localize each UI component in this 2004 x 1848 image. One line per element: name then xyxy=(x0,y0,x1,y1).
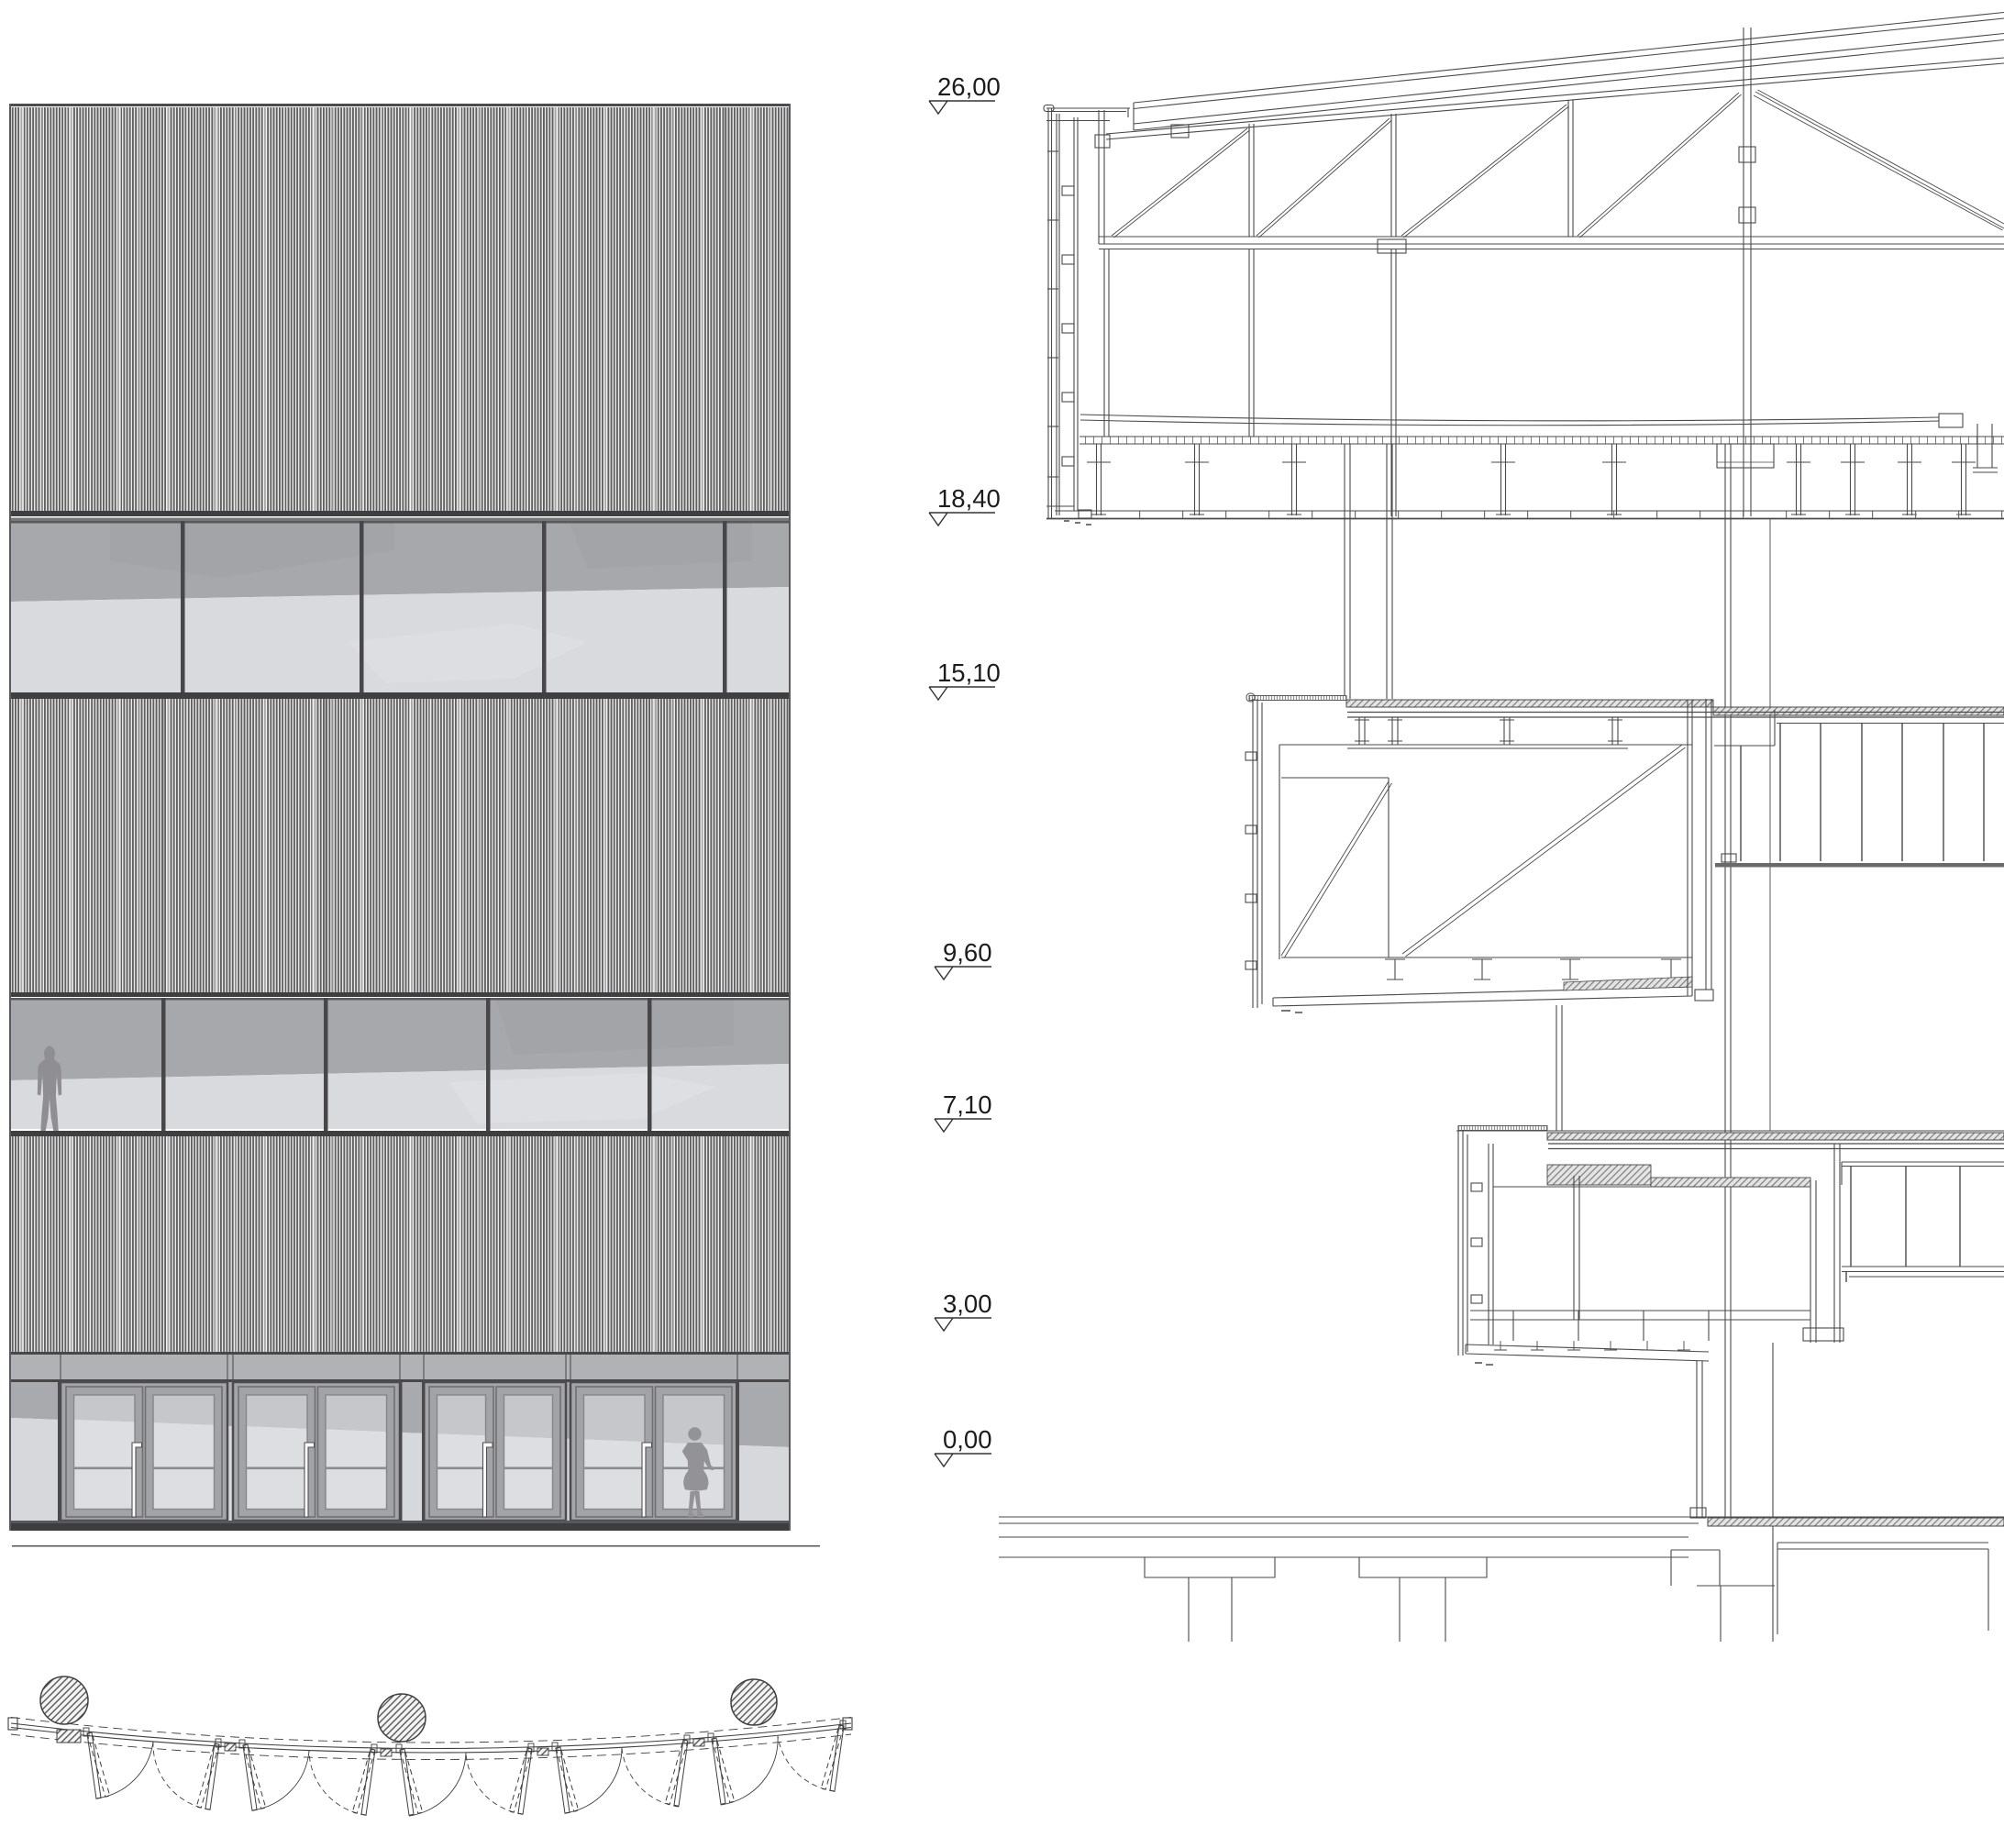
svg-text:3,00: 3,00 xyxy=(943,1289,992,1318)
svg-text:26,00: 26,00 xyxy=(937,72,1001,101)
svg-text:7,10: 7,10 xyxy=(943,1090,992,1119)
svg-text:0,00: 0,00 xyxy=(943,1425,992,1454)
svg-text:15,10: 15,10 xyxy=(937,658,1001,687)
svg-text:9,60: 9,60 xyxy=(943,938,992,967)
svg-text:18,40: 18,40 xyxy=(937,484,1001,513)
